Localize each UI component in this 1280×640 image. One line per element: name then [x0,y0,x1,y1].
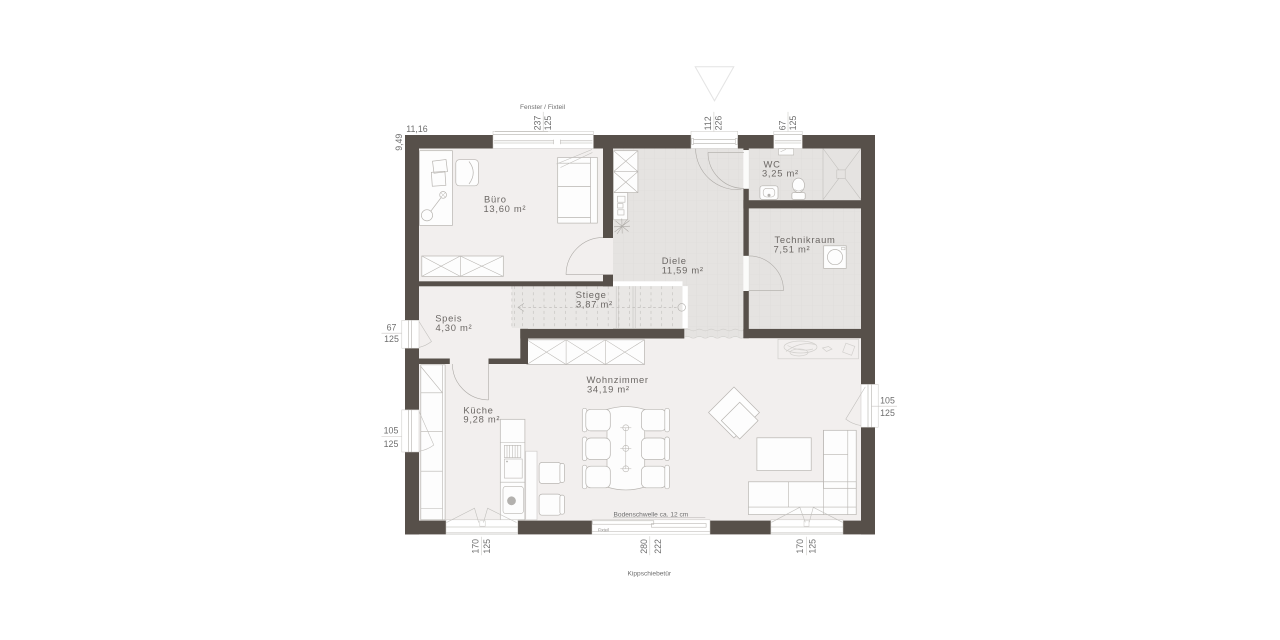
svg-text:67: 67 [387,323,397,333]
svg-text:3,25 m²: 3,25 m² [762,168,799,179]
svg-text:125: 125 [482,539,492,554]
svg-text:9,28 m²: 9,28 m² [463,414,500,425]
svg-text:3,87 m²: 3,87 m² [576,298,613,309]
svg-text:125: 125 [880,408,895,418]
svg-text:Bodenschwelle ca. 12 cm: Bodenschwelle ca. 12 cm [614,511,689,518]
svg-text:237: 237 [533,116,543,131]
svg-text:13,60 m²: 13,60 m² [484,203,527,214]
svg-text:11,16: 11,16 [406,124,427,134]
svg-text:34,19 m²: 34,19 m² [587,384,630,395]
svg-text:9,49: 9,49 [394,134,404,151]
svg-text:105: 105 [880,396,895,406]
svg-text:11,59 m²: 11,59 m² [662,264,704,275]
svg-text:125: 125 [807,539,817,554]
svg-text:Fenster / Fixteil: Fenster / Fixteil [520,104,566,111]
svg-text:Fixteil: Fixteil [598,528,609,533]
svg-text:Kippschiebetür: Kippschiebetür [628,571,672,578]
svg-text:226: 226 [714,116,724,131]
svg-text:125: 125 [384,334,399,344]
svg-text:170: 170 [795,539,805,554]
svg-text:125: 125 [384,439,399,449]
svg-text:280: 280 [639,539,649,554]
svg-text:112: 112 [703,116,713,130]
svg-text:4,30 m²: 4,30 m² [436,322,473,333]
svg-text:170: 170 [470,539,480,554]
svg-text:125: 125 [788,116,798,131]
svg-text:105: 105 [384,426,399,436]
svg-text:67: 67 [778,121,788,131]
svg-text:125: 125 [543,116,553,131]
svg-text:222: 222 [653,539,663,554]
svg-text:7,51 m²: 7,51 m² [774,243,811,254]
